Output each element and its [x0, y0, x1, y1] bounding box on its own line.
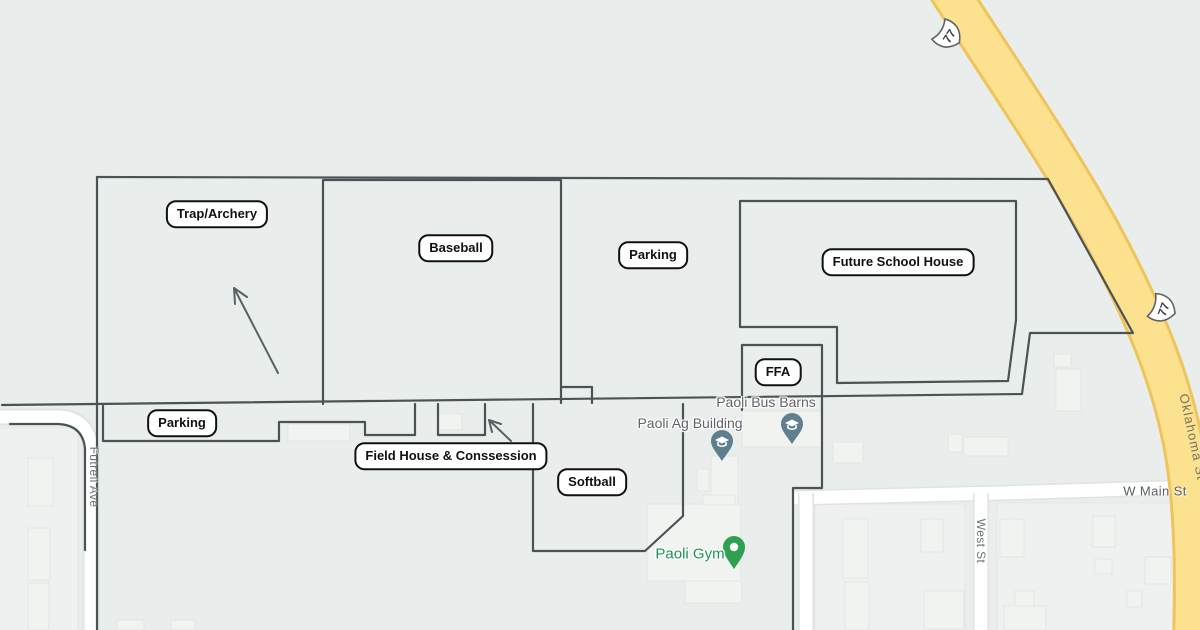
- future-school-outline: [740, 201, 1016, 383]
- poi-label-paoli-bus-barns: Paoli Bus Barns: [716, 394, 816, 410]
- annotation-baseball: Baseball: [418, 234, 493, 262]
- poi-label-paoli-gym: Paoli Gym: [655, 546, 724, 563]
- annotation-parking-bottom: Parking: [147, 409, 217, 437]
- field-house-arrow: [489, 420, 511, 441]
- street-label-w-main-st: W Main St: [1123, 484, 1187, 499]
- annotation-parking-top: Parking: [618, 241, 688, 269]
- street-label-west-st: West St: [974, 519, 988, 564]
- annotation-field-house: Field House & Conssession: [354, 442, 547, 470]
- annotation-softball: Softball: [557, 468, 627, 496]
- annotation-ffa: FFA: [755, 358, 802, 386]
- drawn-arrows: [234, 288, 511, 441]
- annotation-future-school-house: Future School House: [822, 248, 975, 276]
- poi-label-paoli-ag-building: Paoli Ag Building: [637, 415, 742, 431]
- annotation-trap-archery: Trap/Archery: [166, 200, 268, 228]
- street-label-futrell-ave: Futrell Ave: [87, 447, 101, 508]
- map-canvas: 77 77 Futrell Ave West St W Main St Okla…: [0, 0, 1200, 630]
- map-graphics: 77 77: [0, 0, 1200, 630]
- trap-archery-arrow: [234, 288, 278, 373]
- baseball-outline: [323, 180, 592, 404]
